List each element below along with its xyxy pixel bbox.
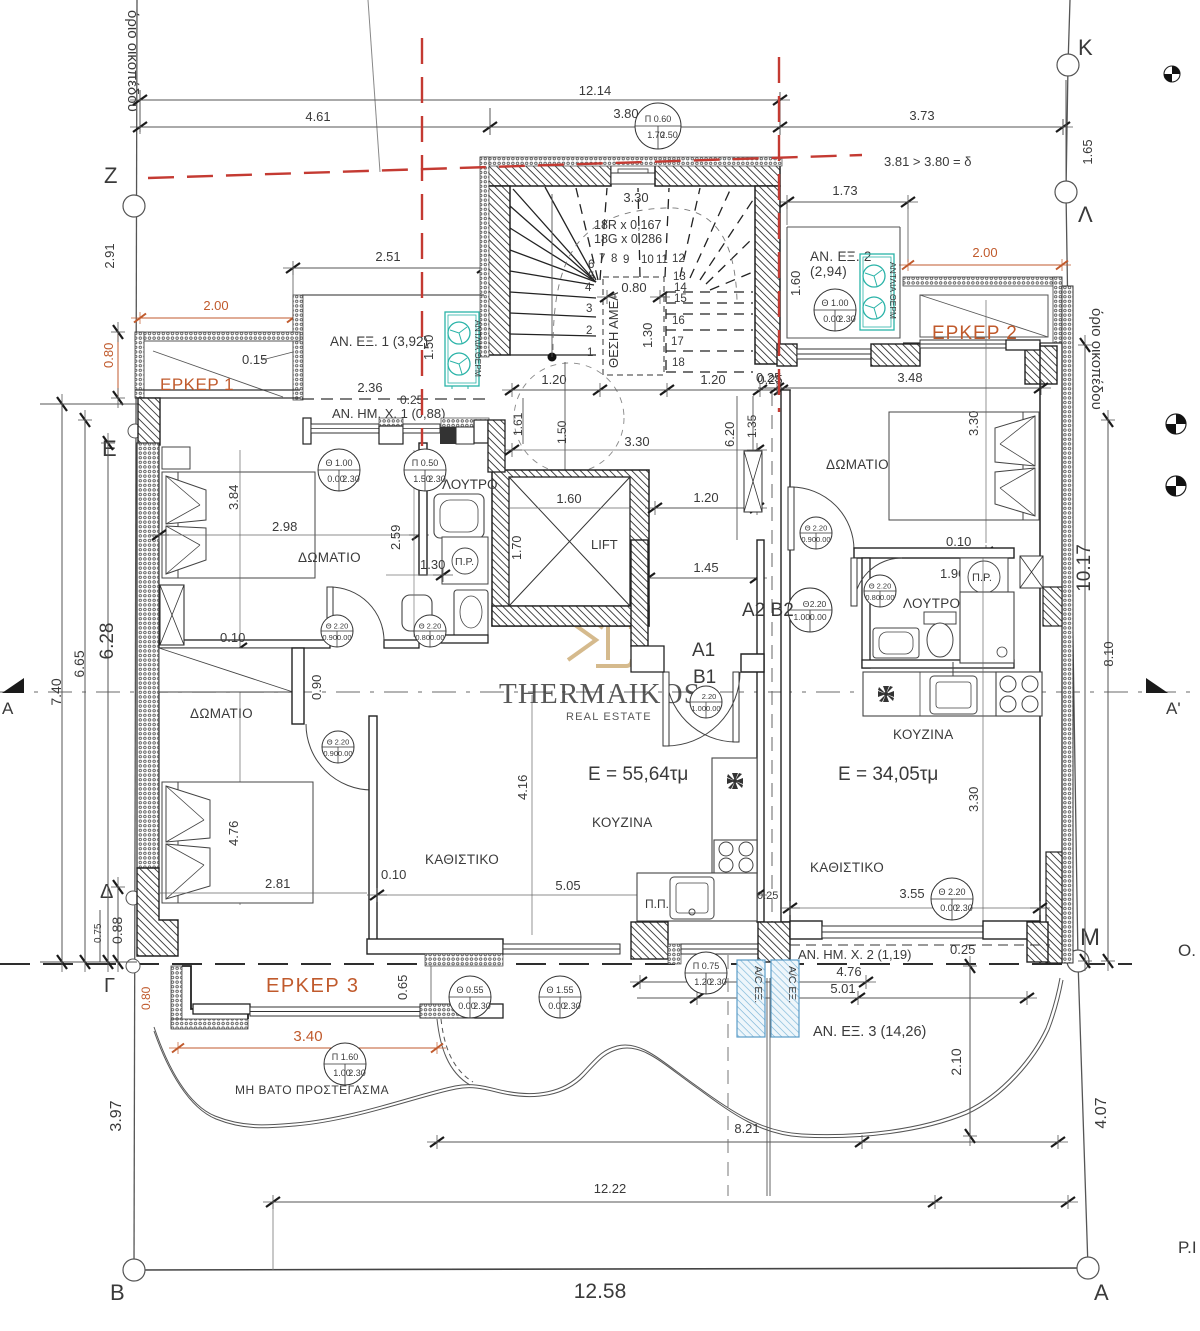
svg-text:(2,94): (2,94) [810, 264, 847, 279]
svg-text:ΑΝΤΛΙΑ ΘΕΡΜ: ΑΝΤΛΙΑ ΘΕΡΜ [888, 262, 898, 319]
svg-text:Θ: Θ [803, 599, 810, 609]
svg-text:1.70: 1.70 [510, 536, 524, 560]
svg-text:A1: A1 [692, 640, 715, 661]
svg-text:E: E [102, 436, 117, 461]
svg-text:3.81 > 3.80 = δ: 3.81 > 3.80 = δ [884, 154, 971, 169]
svg-text:17: 17 [671, 336, 684, 348]
svg-text:8.21: 8.21 [734, 1121, 759, 1136]
svg-text:4.07: 4.07 [1093, 1097, 1110, 1128]
svg-text:0.10: 0.10 [946, 534, 971, 549]
svg-text:1.50: 1.50 [555, 420, 569, 444]
svg-text:Θ 2.20: Θ 2.20 [869, 582, 892, 591]
svg-text:ΛΟΥΤΡΟ: ΛΟΥΤΡΟ [442, 477, 498, 492]
svg-text:ΕΡΚΕΡ 3: ΕΡΚΕΡ 3 [266, 975, 360, 997]
svg-text:ΕΡΚΕΡ 1: ΕΡΚΕΡ 1 [160, 375, 234, 394]
svg-text:5.05: 5.05 [555, 878, 580, 893]
svg-text:2.98: 2.98 [272, 519, 297, 534]
svg-text:18R x 0,167: 18R x 0,167 [594, 218, 661, 232]
svg-text:Θ 1.00: Θ 1.00 [821, 298, 848, 308]
svg-text:2.10: 2.10 [948, 1048, 964, 1075]
svg-text:ΚΑΘΙΣΤΙΚΟ: ΚΑΘΙΣΤΙΚΟ [810, 860, 884, 875]
svg-text:ΔΩΜΑΤΙΟ: ΔΩΜΑΤΙΟ [298, 550, 361, 565]
svg-text:3.73: 3.73 [909, 108, 934, 123]
svg-text:0.80: 0.80 [139, 986, 153, 1010]
svg-text:16: 16 [672, 315, 685, 327]
svg-text:E = 55,64τμ: E = 55,64τμ [588, 764, 688, 785]
svg-text:όριο οικοπέδου: όριο οικοπέδου [124, 10, 141, 112]
svg-text:2.30: 2.30 [473, 1001, 491, 1011]
svg-text:Π.Ρ.: Π.Ρ. [972, 572, 992, 584]
svg-text:2.30: 2.30 [955, 903, 973, 913]
svg-text:2.91: 2.91 [102, 243, 117, 268]
svg-text:10.17: 10.17 [1074, 544, 1095, 592]
svg-text:M: M [1080, 924, 1100, 951]
svg-text:1.45: 1.45 [693, 560, 718, 575]
svg-text:3.97: 3.97 [108, 1100, 125, 1131]
svg-text:8: 8 [611, 253, 617, 265]
svg-text:Θ 0.55: Θ 0.55 [456, 985, 483, 995]
svg-text:1.65: 1.65 [1080, 139, 1095, 164]
svg-text:ΑΝ. ΕΞ. 1 (3,92): ΑΝ. ΕΞ. 1 (3,92) [330, 334, 428, 349]
svg-text:ΑΝΤΛΙΑ ΘΕΡΜ: ΑΝΤΛΙΑ ΘΕΡΜ [473, 320, 483, 377]
svg-text:ΑΝ. ΕΞ. 3 (14,26): ΑΝ. ΕΞ. 3 (14,26) [813, 1024, 926, 1040]
svg-text:Θ 1.55: Θ 1.55 [546, 985, 573, 995]
svg-text:0.900.00: 0.900.00 [322, 633, 351, 642]
svg-text:2: 2 [586, 325, 592, 337]
svg-text:0.900.00: 0.900.00 [801, 535, 830, 544]
svg-text:3.30: 3.30 [966, 787, 981, 812]
svg-text:K: K [1078, 35, 1093, 60]
svg-text:1.30: 1.30 [420, 557, 445, 572]
svg-text:3.84: 3.84 [226, 485, 241, 510]
svg-text:Π 0.75: Π 0.75 [693, 961, 720, 971]
svg-text:2.59: 2.59 [388, 525, 403, 550]
svg-text:5.01: 5.01 [830, 981, 855, 996]
svg-text:2.30: 2.30 [563, 1001, 581, 1011]
svg-text:1.20: 1.20 [700, 372, 725, 387]
svg-text:10: 10 [641, 254, 654, 266]
svg-text:Θ 2.20: Θ 2.20 [326, 622, 349, 631]
svg-text:ΔΩΜΑΤΙΟ: ΔΩΜΑΤΙΟ [190, 706, 253, 721]
svg-text:Π 0.50: Π 0.50 [412, 458, 439, 468]
svg-text:0.10: 0.10 [381, 867, 406, 882]
svg-text:1.20: 1.20 [541, 372, 566, 387]
svg-text:0.80: 0.80 [621, 280, 646, 295]
svg-text:Λ: Λ [1078, 202, 1093, 227]
svg-text:2.30: 2.30 [342, 474, 360, 484]
svg-text:ΚΟΥΖΙΝΑ: ΚΟΥΖΙΝΑ [592, 815, 653, 830]
svg-text:ΜΗ ΒΑΤΟ ΠΡΟΣΤΕΓΑΣΜΑ: ΜΗ ΒΑΤΟ ΠΡΟΣΤΕΓΑΣΜΑ [235, 1083, 389, 1097]
svg-text:18: 18 [672, 357, 685, 369]
svg-text:4.16: 4.16 [515, 775, 530, 800]
svg-text:Π 1.60: Π 1.60 [332, 1052, 359, 1062]
svg-text:O.: O. [1178, 941, 1196, 960]
svg-text:ΑΝ. ΕΞ. 2: ΑΝ. ΕΞ. 2 [810, 249, 872, 264]
svg-text:B: B [110, 1280, 125, 1305]
svg-text:6.65: 6.65 [71, 650, 87, 677]
svg-text:Γ: Γ [104, 975, 115, 997]
svg-text:1.000.00: 1.000.00 [793, 612, 826, 622]
svg-text:A2 B2: A2 B2 [742, 600, 794, 621]
svg-text:2.00: 2.00 [972, 245, 997, 260]
svg-text:ΘΕΣΗ ΑΜΕΑ: ΘΕΣΗ ΑΜΕΑ [606, 292, 621, 368]
svg-text:1.35: 1.35 [745, 414, 759, 438]
svg-text:REAL ESTATE: REAL ESTATE [566, 711, 652, 723]
svg-text:0.800.00: 0.800.00 [415, 633, 444, 642]
svg-text:12.58: 12.58 [574, 1280, 627, 1303]
svg-text:3: 3 [586, 303, 592, 315]
svg-text:6.28: 6.28 [97, 623, 118, 660]
svg-text:ΚΟΥΖΙΝΑ: ΚΟΥΖΙΝΑ [893, 727, 954, 742]
svg-text:A/C ΕΞ.: A/C ΕΞ. [786, 966, 798, 1003]
svg-text:A: A [2, 699, 14, 718]
svg-text:2.30: 2.30 [838, 314, 856, 324]
svg-text:Θ 2.20: Θ 2.20 [419, 622, 442, 631]
svg-text:3.40: 3.40 [293, 1028, 322, 1045]
svg-text:2.30: 2.30 [348, 1068, 366, 1078]
svg-text:2.20: 2.20 [702, 692, 717, 701]
svg-text:3.48: 3.48 [897, 370, 922, 385]
svg-text:1.50: 1.50 [421, 335, 436, 360]
svg-text:4.76: 4.76 [836, 964, 861, 979]
svg-text:12.14: 12.14 [579, 83, 612, 98]
svg-text:6.20: 6.20 [722, 422, 737, 447]
svg-text:4: 4 [585, 282, 592, 294]
svg-text:0.10: 0.10 [220, 630, 245, 645]
svg-text:1.61: 1.61 [511, 412, 525, 436]
svg-text:3.80: 3.80 [613, 106, 638, 121]
svg-text:Z: Z [104, 163, 117, 188]
svg-text:όριο οικοπέδου: όριο οικοπέδου [1088, 308, 1105, 410]
svg-text:15: 15 [674, 293, 687, 305]
svg-text:Π.Ρ.: Π.Ρ. [455, 556, 474, 568]
svg-text:0.800.00: 0.800.00 [865, 593, 894, 602]
svg-text:0.25: 0.25 [400, 393, 424, 407]
svg-text:E = 34,05τμ: E = 34,05τμ [838, 764, 938, 785]
svg-text:ΔΩΜΑΤΙΟ: ΔΩΜΑΤΙΟ [826, 457, 889, 472]
svg-text:0.90: 0.90 [309, 675, 324, 700]
svg-text:1.000.00: 1.000.00 [691, 704, 720, 713]
svg-text:0.25: 0.25 [950, 942, 975, 957]
svg-text:0.75: 0.75 [93, 923, 104, 943]
svg-text:1: 1 [587, 347, 593, 359]
svg-text:1.73: 1.73 [832, 183, 857, 198]
svg-text:2.00: 2.00 [203, 298, 228, 313]
svg-text:1.30: 1.30 [640, 323, 655, 348]
svg-text:2.20: 2.20 [810, 599, 827, 609]
svg-text:THERMAIKOS: THERMAIKOS [499, 678, 701, 710]
svg-text:7.40: 7.40 [48, 678, 64, 705]
svg-text:1.60: 1.60 [788, 271, 803, 296]
svg-text:0.25: 0.25 [757, 890, 778, 902]
svg-text:ΑΝ. ΗΜ. Χ. 2 (1,19): ΑΝ. ΗΜ. Χ. 2 (1,19) [798, 947, 911, 962]
svg-text:2.51: 2.51 [375, 249, 400, 264]
svg-text:4.61: 4.61 [305, 109, 330, 124]
svg-text:Θ 2.20: Θ 2.20 [805, 524, 828, 533]
svg-text:Π 0.60: Π 0.60 [645, 114, 672, 124]
svg-text:0.88: 0.88 [109, 917, 125, 944]
svg-text:P.I: P.I [1178, 1238, 1197, 1257]
svg-text:3.30: 3.30 [624, 434, 649, 449]
svg-text:A': A' [1166, 699, 1181, 718]
svg-text:0.80: 0.80 [101, 343, 116, 368]
svg-text:3.30: 3.30 [966, 411, 981, 436]
svg-text:Δ: Δ [100, 881, 113, 903]
svg-text:2.81: 2.81 [265, 876, 290, 891]
svg-text:B1: B1 [693, 667, 716, 688]
svg-text:12: 12 [672, 253, 685, 265]
svg-text:2.50: 2.50 [660, 130, 678, 140]
svg-text:11: 11 [656, 254, 668, 266]
svg-text:8.10: 8.10 [1101, 641, 1116, 666]
svg-text:A: A [1094, 1280, 1109, 1305]
svg-text:3.55: 3.55 [899, 886, 924, 901]
svg-text:18G x 0,286: 18G x 0,286 [594, 232, 662, 246]
svg-text:Θ 2.20: Θ 2.20 [938, 887, 965, 897]
svg-text:Π.Π.: Π.Π. [645, 897, 669, 911]
svg-text:2.36: 2.36 [357, 380, 382, 395]
svg-text:0.25: 0.25 [756, 370, 781, 385]
svg-text:6: 6 [588, 259, 594, 271]
svg-text:2.30: 2.30 [709, 977, 727, 987]
svg-text:3.30: 3.30 [623, 190, 648, 205]
svg-text:12.22: 12.22 [594, 1181, 627, 1196]
svg-text:ΚΑΘΙΣΤΙΚΟ: ΚΑΘΙΣΤΙΚΟ [425, 852, 499, 867]
svg-text:0.900.00: 0.900.00 [323, 749, 352, 758]
svg-text:Θ 1.00: Θ 1.00 [325, 458, 352, 468]
svg-text:9: 9 [623, 254, 629, 266]
svg-text:0.65: 0.65 [395, 975, 410, 1000]
svg-text:Θ 2.20: Θ 2.20 [327, 738, 350, 747]
svg-text:1.20: 1.20 [693, 490, 718, 505]
svg-text:5: 5 [588, 271, 594, 283]
svg-text:ΛΟΥΤΡΟ: ΛΟΥΤΡΟ [903, 596, 960, 611]
svg-text:1.60: 1.60 [556, 491, 581, 506]
svg-text:4.76: 4.76 [226, 821, 241, 846]
svg-text:7: 7 [599, 253, 605, 265]
svg-text:A/C ΕΞ.: A/C ΕΞ. [752, 966, 764, 1003]
svg-text:LIFT: LIFT [591, 537, 618, 552]
